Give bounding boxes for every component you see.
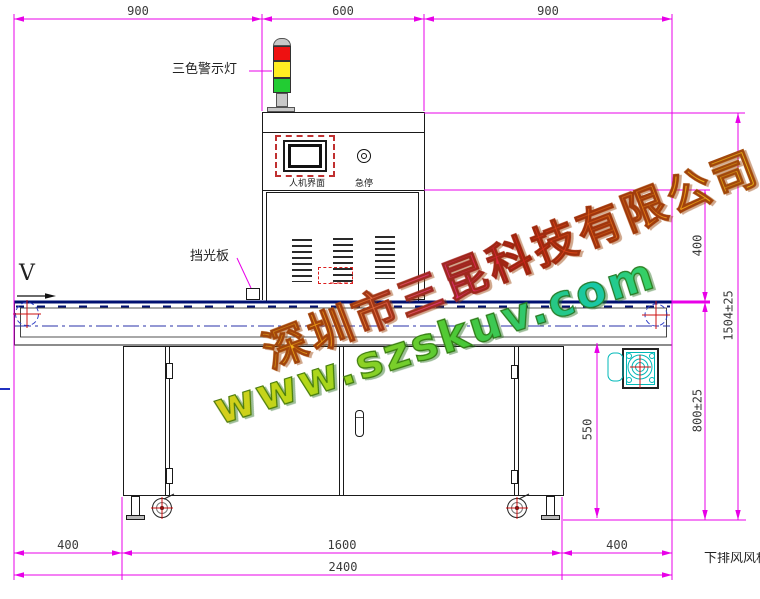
leveling-foot-stem-left <box>131 496 140 516</box>
dim-top-right: 900 <box>508 5 588 18</box>
leveling-foot-pad-right <box>541 515 560 520</box>
cad-drawing-canvas: 900 600 900 400 1504±25 800±25 550 400 1… <box>0 0 760 599</box>
flow-direction-arrow <box>17 293 56 298</box>
warning-light-base <box>267 107 295 112</box>
label-bottom-exhaust: 下排风风机 <box>704 552 760 566</box>
roller-right-icon <box>642 301 670 329</box>
label-estop: 急停 <box>351 177 377 191</box>
chamber-side-line-left <box>262 190 263 300</box>
estop-button-inner <box>361 153 367 159</box>
cabinet-divider-right-b <box>518 346 519 495</box>
motor-bolt-plate <box>626 352 655 385</box>
uv-lamp-dashed-outline <box>318 267 353 284</box>
vent-louvers-left <box>292 239 312 282</box>
label-light-shield: 挡光板 <box>190 250 229 264</box>
dim-top-left: 900 <box>98 5 178 18</box>
door-handle-notch <box>356 417 363 418</box>
leveling-foot-stem-right <box>546 496 555 516</box>
door-hinge-icon <box>166 468 173 484</box>
door-hinge-icon <box>511 365 518 379</box>
label-flow-direction: V <box>19 262 35 286</box>
dim-top-mid: 600 <box>303 5 383 18</box>
warning-light-red-segment <box>273 46 291 61</box>
dim-total-length: 2400 <box>303 561 383 574</box>
dim-frame-height: 550 <box>582 400 595 460</box>
leveling-foot-pad-left <box>126 515 145 520</box>
warning-light-pole <box>276 93 288 107</box>
light-shield-plate <box>246 288 260 300</box>
label-hmi: 人机界面 <box>284 177 330 191</box>
dim-total-height: 1504±25 <box>723 276 736 356</box>
hmi-screen <box>288 144 322 168</box>
dim-bottom-right: 400 <box>577 539 657 552</box>
warning-light-dome-icon <box>273 38 291 46</box>
warning-light-green-segment <box>273 78 291 93</box>
dim-bottom-left: 400 <box>28 539 108 552</box>
door-hinge-icon <box>166 363 173 379</box>
door-handle <box>355 410 364 437</box>
caster-wheel-left-icon <box>151 494 174 519</box>
dim-belt-height: 800±25 <box>692 371 705 451</box>
dim-bottom-mid: 1600 <box>302 539 382 552</box>
door-hinge-icon <box>511 470 518 484</box>
head-divider-line <box>262 132 425 133</box>
roller-left-icon <box>13 300 41 328</box>
caster-wheel-right-icon <box>506 494 529 519</box>
warning-light-yellow-segment <box>273 61 291 78</box>
label-warning-light: 三色警示灯 <box>172 63 237 77</box>
